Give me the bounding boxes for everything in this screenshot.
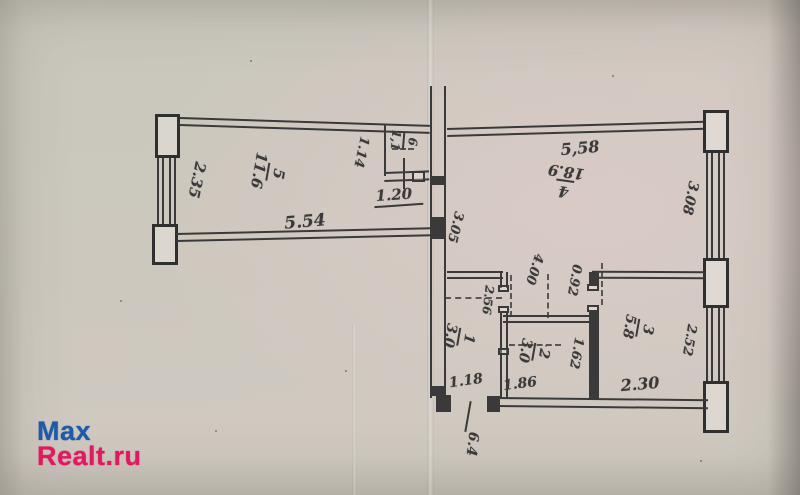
door-jamb <box>498 285 509 292</box>
room-6-label: 6 1,1 <box>389 129 420 152</box>
dimension-room4-length: 5,58 <box>560 137 600 159</box>
window-pier-block <box>703 258 729 308</box>
dimension-room3-depth: 2.52 <box>679 323 699 357</box>
window-sill-block <box>155 114 180 158</box>
wall-fill <box>432 176 444 185</box>
paper-fold-line-lower <box>352 325 357 495</box>
dimension-room1-depth: 2.56 <box>479 285 496 316</box>
dimension-room5-length: 5.54 <box>284 210 327 234</box>
room-4-label: 4 18.9 <box>544 161 585 201</box>
wall-room4-top <box>447 121 705 137</box>
room-3-label: 3 5.8 <box>619 313 656 343</box>
door-jamb <box>412 171 425 182</box>
dimension-room2-width: 1.86 <box>502 374 538 394</box>
room-area: 18.9 <box>547 161 586 183</box>
dimension-entrance-mark: 6.4 <box>463 431 482 457</box>
wall-central <box>430 86 446 398</box>
room-area: 11.6 <box>247 151 270 190</box>
window-glazing <box>706 153 725 259</box>
room-number: 6 <box>402 133 419 151</box>
site-watermark: Max Realt.ru <box>37 419 142 469</box>
entrance-corner-block <box>436 395 451 412</box>
dimension-dash-line <box>510 275 512 317</box>
watermark-brand-part2: Realt.ru <box>37 444 142 469</box>
leader-line-entrance <box>464 401 471 432</box>
room-2-label: 2 3.0 <box>515 337 552 367</box>
room-area: 1,1 <box>389 129 404 151</box>
dimension-dash-line <box>601 263 603 305</box>
paper-speck <box>215 430 217 432</box>
window-sill-block <box>703 110 729 153</box>
room-number: 3 <box>635 319 656 340</box>
dimension-dash-line <box>547 274 549 318</box>
room-5-label: 5 11.6 <box>247 151 288 193</box>
wall-room3-top <box>592 271 705 280</box>
dimension-room4-inner-length: 4.00 <box>522 252 546 287</box>
dimension-hall-depth: 3.05 <box>444 210 466 244</box>
wall-room3-left-lower <box>589 311 599 399</box>
dimension-niche-depth: 0.92 <box>564 263 584 297</box>
wall-closet-left <box>384 124 386 176</box>
paper-speck <box>120 300 122 302</box>
dimension-room5-width: 2.35 <box>184 160 209 199</box>
room-number: 2 <box>531 343 552 364</box>
dimension-room1-width: 1.18 <box>448 371 484 392</box>
floor-plan-photo: 5 11.6 6 1,1 4 18.9 1 3.0 2 3.0 3 5.8 2.… <box>0 0 800 495</box>
room-1-label: 1 3.0 <box>440 322 477 352</box>
dimension-room2-depth: 1.62 <box>566 336 586 370</box>
window-glazing <box>157 158 176 224</box>
door-jamb <box>587 284 599 291</box>
wall-fill <box>432 217 444 239</box>
room-number: 1 <box>456 328 477 349</box>
dimension-room3-width: 2.30 <box>620 373 660 395</box>
dimension-room4-width: 3.08 <box>679 180 702 217</box>
paper-speck <box>700 460 702 462</box>
room-number: 4 <box>553 179 574 200</box>
wall-room1-top <box>447 271 503 279</box>
dimension-room6-depth: 1.14 <box>350 135 371 169</box>
paper-speck <box>612 75 614 77</box>
wall-bottom-outer <box>498 397 708 409</box>
dimension-room6-width: 1.20 <box>373 184 423 208</box>
paper-speck <box>250 60 252 62</box>
window-glazing <box>706 308 725 382</box>
door-jamb <box>498 348 509 355</box>
paper-speck <box>345 370 347 372</box>
window-sill-block <box>152 224 178 265</box>
